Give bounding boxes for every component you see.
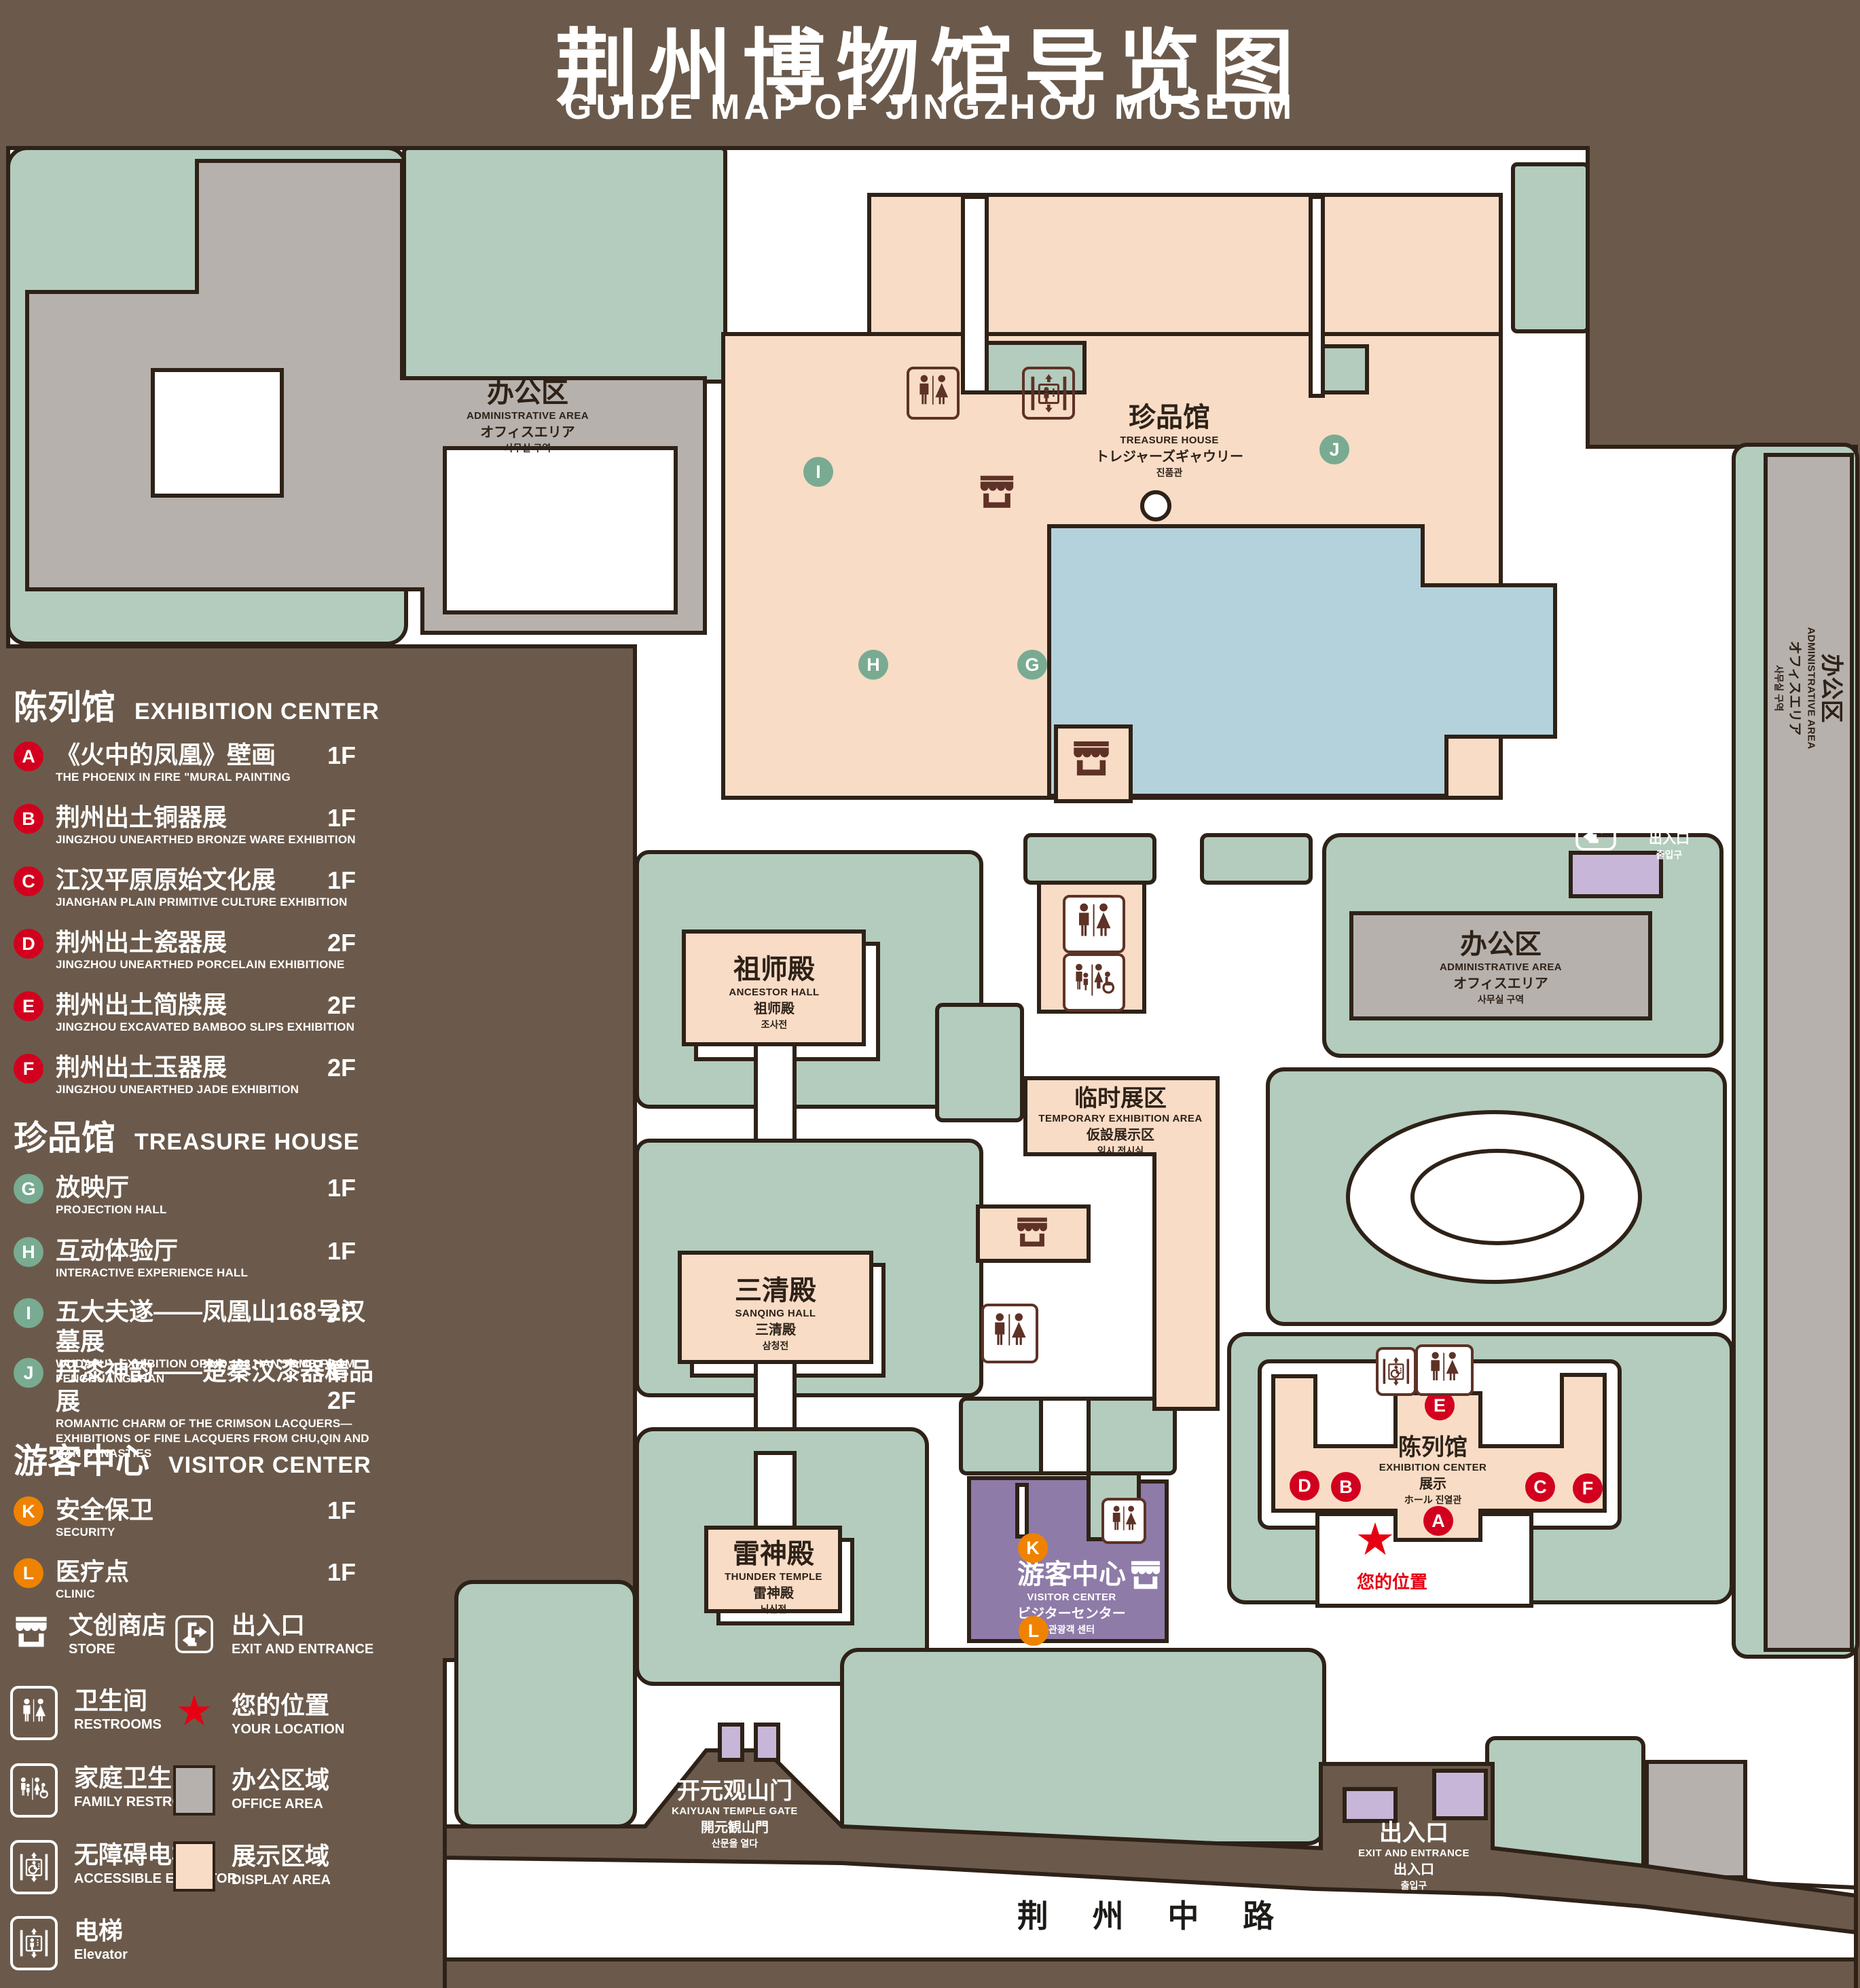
badge-j: J [14,1358,43,1388]
ancestor-stem [756,1044,795,1141]
office-area-swatch [173,1765,215,1816]
elevator-icon [1022,367,1075,420]
elevator-icon [10,1916,58,1970]
gate-pillar-1 [720,1725,742,1760]
green-south-band [842,1650,1324,1843]
family-restroom-icon [1063,953,1125,1012]
legend-item-d: D 荆州出土瓷器展 JINGZHOU UNEARTHED PORCELAIN E… [14,927,373,972]
gate-pillar-2 [756,1725,778,1760]
map-marker-a: A [1423,1506,1453,1536]
restroom-icon [981,1304,1038,1363]
label-sanqing: 三清殿 SANQING HALL 三清殿 삼청전 [674,1275,877,1352]
map-marker-k: K [1018,1533,1048,1563]
badge-g: G [14,1174,43,1204]
sanqing-stem [756,1362,795,1429]
badge-d: D [14,929,43,959]
green-ne-notch [1513,164,1588,331]
visitor-north-slot [1041,1399,1089,1473]
legend-header-treasure: 珍品馆 TREASURE HOUSE [14,1111,359,1160]
label-exhibition: 陈列馆 EXHIBITION CENTER 展示 ホール 진열관 [1348,1434,1518,1507]
legend-item-b: B 荆州出土铜器展 JINGZHOU UNEARTHED BRONZE WARE… [14,803,373,847]
green-tab-2 [937,1005,1022,1120]
green-tab-1 [1025,835,1154,883]
store-icon [976,473,1018,515]
legend-item-c: C 江汉平原原始文化展 JIANGHAN PLAIN PRIMITIVE CUL… [14,865,373,910]
store-icon [1069,739,1114,784]
restroom-icon [907,367,960,420]
store-icon [1127,1556,1164,1598]
badge-k: K [14,1496,43,1526]
legend-item-f: F 荆州出土玉器展 JINGZHOU UNEARTHED JADE EXHIBI… [14,1052,373,1097]
badge-f: F [14,1054,43,1084]
accessible-elevator-icon [1376,1347,1417,1396]
legend-symbol-elevator: 电梯 Elevator [10,1916,128,1970]
lavender-s-1 [1345,1789,1396,1821]
map-marker-c: C [1525,1472,1555,1502]
restroom-icon [1101,1498,1146,1544]
lake-gate-dot [1142,492,1169,519]
legend-item-k: K 安全保卫 SECURITY 1F [14,1495,373,1540]
store-icon [1013,1215,1051,1253]
restroom-icon [1063,895,1125,953]
map-marker-i: I [803,457,833,487]
map-marker-h: H [858,650,888,680]
legend-symbol-display: 展示区域 DISPLAY AREA [173,1841,331,1892]
lavender-s-2 [1434,1771,1486,1818]
legend-item-l: L 医疗点 CLINIC 1F [14,1557,373,1602]
building-gray-se [1647,1762,1745,1877]
label-exit-s: 出入口 EXIT AND ENTRANCE 出入口 출입구 [1329,1820,1499,1892]
label-ancestor: 祖师殿 ANCESTOR HALL 祖师殿 조사전 [672,954,876,1031]
legend-symbol-exit: 出入口 EXIT AND ENTRANCE [173,1610,373,1658]
green-sw-block [456,1582,635,1826]
visitor-white-slot [1017,1485,1027,1536]
label-admin-nw: 办公区 ADMINISTRATIVE AREA オフィスエリア 사무실 구역 [392,378,663,455]
map-marker-f: F [1573,1473,1603,1503]
legend-symbol-restrooms: 卫生间 RESTROOMS [10,1686,162,1740]
label-admin-strip: 办公区 ADMINISTRATIVE AREA オフィスエリア 사무실 구역 [1772,553,1844,824]
display-area-swatch [173,1841,215,1892]
green-n-strip [404,148,725,382]
restroom-icon [1415,1344,1474,1396]
legend-symbol-store: 文创商店 STORE [10,1610,166,1658]
your-location-star-icon: ★ [173,1691,215,1733]
guide-map-poster: 荆州博物馆导览图 GUIDE MAP OF JINGZHOU MUSEUM [0,0,1860,1988]
store-icon [10,1610,52,1658]
legend-item-a: A 《火中的凤凰》壁画 THE PHOENIX IN FIRE "MURAL P… [14,740,373,785]
label-thunder: 雷神殿 THUNDER TEMPLE 雷神殿 뇌신전 [672,1539,875,1616]
exit-icon [173,1610,215,1658]
courtyard-1 [153,370,282,496]
label-temporary: 临时展区 TEMPORARY EXHIBITION AREA 仮設展示区 임시 … [1015,1085,1226,1158]
legend-symbol-office: 办公区域 OFFICE AREA [173,1765,329,1816]
restroom-icon [10,1686,58,1740]
badge-e: E [14,991,43,1021]
treasure-notch-2 [1323,346,1367,392]
map-marker-b: B [1331,1472,1361,1502]
accessible-elevator-icon [10,1840,58,1894]
road-name: 荆 州 中 路 [978,1892,1331,1936]
legend-item-e: E 荆州出土简牍展 JINGZHOU EXCAVATED BAMBOO SLIP… [14,990,373,1035]
badge-a: A [14,741,43,771]
family-restroom-icon [10,1763,58,1818]
badge-c: C [14,866,43,896]
courtyard-2 [445,448,676,612]
treasure-slot-1 [963,197,987,392]
badge-h: H [14,1237,43,1267]
your-location-star-icon [1357,1521,1393,1558]
garden-path-inner [1412,1151,1582,1243]
green-tab-3 [1202,835,1311,883]
legend-header-visitor: 游客中心 VISITOR CENTER [14,1434,371,1483]
legend-symbol-location: ★ 您的位置 YOUR LOCATION [173,1691,344,1738]
thunder-stem [756,1453,795,1531]
label-admin-e: 办公区 ADMINISTRATIVE AREA オフィスエリア 사무실 구역 [1365,929,1637,1006]
legend-header-exhibition: 陈列馆 EXHIBITION CENTER [14,680,380,729]
badge-i: I [14,1298,43,1328]
map-marker-l: L [1019,1616,1048,1646]
legend-item-h: H 互动体验厅 INTERACTIVE EXPERIENCE HALL 1F [14,1236,373,1281]
badge-b: B [14,804,43,834]
map-marker-j: J [1319,435,1349,464]
badge-l: L [14,1558,43,1588]
exit-icon [1574,809,1618,851]
bottom-strip [445,1959,1856,1988]
map-marker-g: G [1017,650,1047,680]
map-marker-d: D [1290,1471,1319,1501]
label-gate: 开元观山门 KAIYUAN TEMPLE GATE 開元観山門 산문을 열다 [633,1778,837,1850]
legend-item-g: G 放映厅 PROJECTION HALL 1F [14,1173,373,1217]
your-location-label: 您的位置 [1324,1568,1460,1594]
